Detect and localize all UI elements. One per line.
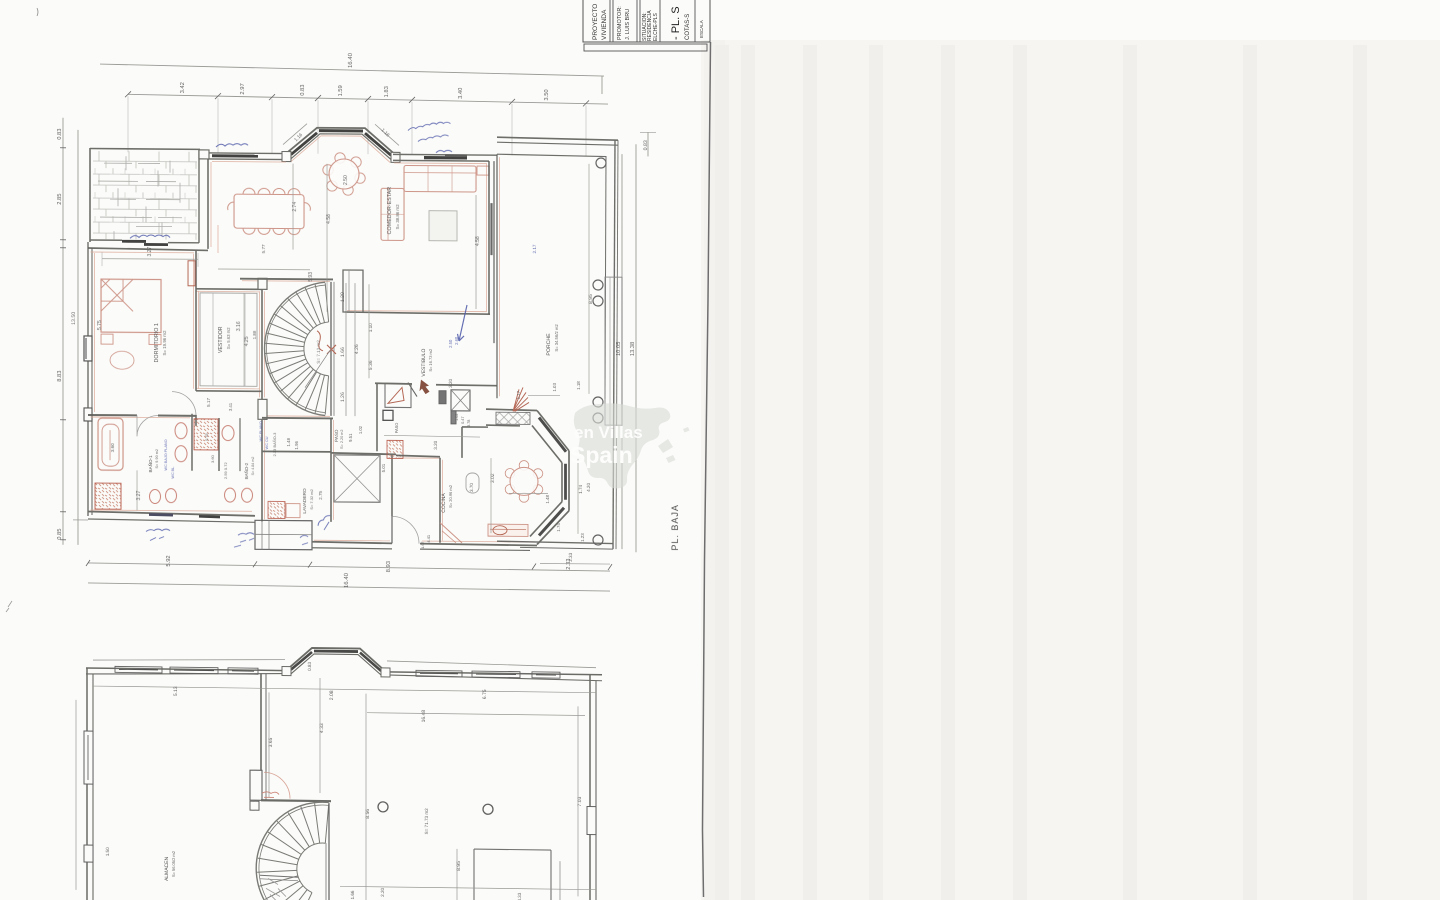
svg-text:16.40: 16.40 xyxy=(348,52,354,68)
svg-text:3.40: 3.40 xyxy=(458,88,464,99)
svg-text:S= 34.56/2 m2: S= 34.56/2 m2 xyxy=(554,324,559,352)
svg-text:1.03: 1.03 xyxy=(552,383,557,392)
svg-text:3.42: 3.42 xyxy=(180,82,186,93)
svg-text:COCINA: COCINA xyxy=(441,493,447,513)
svg-text:S= 2.20 m2: S= 2.20 m2 xyxy=(340,429,344,449)
svg-text:1.96: 1.96 xyxy=(294,440,299,449)
svg-text:5.17: 5.17 xyxy=(206,398,211,407)
svg-text:en Villas: en Villas xyxy=(574,423,643,442)
svg-text:1.20: 1.20 xyxy=(340,292,346,302)
svg-text:5.13: 5.13 xyxy=(173,686,179,696)
svg-text:2.85: 2.85 xyxy=(57,193,63,204)
svg-text:2.08: 2.08 xyxy=(329,690,335,700)
svg-text:WC BL: WC BL xyxy=(171,467,175,479)
svg-text:S= 19.96 m2: S= 19.96 m2 xyxy=(162,330,167,356)
svg-text:3.50: 3.50 xyxy=(544,89,550,100)
svg-text:2.33: 2.33 xyxy=(568,552,573,561)
svg-text:1.66: 1.66 xyxy=(350,890,355,899)
svg-text:3.41: 3.41 xyxy=(228,402,233,411)
svg-text:DORMITORIO 1: DORMITORIO 1 xyxy=(154,323,160,362)
svg-text:5.01: 5.01 xyxy=(381,463,386,472)
svg-text:BAÑO-1: BAÑO-1 xyxy=(147,455,153,473)
svg-text:S= 71.73 m2: S= 71.73 m2 xyxy=(424,808,429,835)
svg-text:5.93: 5.93 xyxy=(308,272,314,282)
svg-text:COMEDOR-ESTAR: COMEDOR-ESTAR xyxy=(387,187,393,235)
svg-text:4.33: 4.33 xyxy=(517,892,522,900)
svg-text:- PL. S: - PL. S xyxy=(670,6,682,40)
svg-text:13.38: 13.38 xyxy=(630,342,636,357)
svg-text:1.02: 1.02 xyxy=(455,413,459,420)
svg-text:0.47: 0.47 xyxy=(461,417,465,424)
svg-text:3.27: 3.27 xyxy=(147,246,153,256)
svg-text:Spain: Spain xyxy=(570,442,633,468)
svg-text:1.59: 1.59 xyxy=(338,85,344,96)
svg-text:1.50: 1.50 xyxy=(105,847,110,856)
svg-text:0.83: 0.83 xyxy=(57,128,63,139)
svg-text:16.40: 16.40 xyxy=(344,572,350,588)
svg-text:S= 7.32 m2: S= 7.32 m2 xyxy=(309,488,314,509)
svg-text:4.41: 4.41 xyxy=(426,534,431,543)
svg-text:S= 38.86 m2: S= 38.86 m2 xyxy=(395,204,400,230)
svg-text:VESTIDOR: VESTIDOR xyxy=(218,326,224,353)
svg-text:9.51: 9.51 xyxy=(348,433,353,442)
svg-text:S= 9.90 m2: S= 9.90 m2 xyxy=(155,449,159,469)
svg-text:2.97: 2.97 xyxy=(240,83,246,94)
svg-text:2.20: 2.20 xyxy=(380,887,385,896)
svg-text:2.75: 2.75 xyxy=(318,490,323,499)
svg-text:S= 56.05/2 m2: S= 56.05/2 m2 xyxy=(171,850,176,877)
svg-text:8.83: 8.83 xyxy=(57,370,63,381)
svg-text:WC CU: WC CU xyxy=(265,436,269,449)
svg-text:1.26: 1.26 xyxy=(340,392,346,402)
svg-text:3.20: 3.20 xyxy=(448,378,453,387)
svg-text:PORCHE: PORCHE xyxy=(546,333,552,356)
svg-text:1.88: 1.88 xyxy=(252,330,257,339)
svg-text:ELCHE-PLS: ELCHE-PLS xyxy=(653,13,659,41)
svg-text:BAÑO-2: BAÑO-2 xyxy=(244,462,249,479)
svg-text:ALMACEN: ALMACEN xyxy=(164,856,170,881)
svg-text:PASO: PASO xyxy=(334,429,339,442)
svg-text:0.83: 0.83 xyxy=(643,140,649,150)
svg-text:1.48: 1.48 xyxy=(286,437,291,446)
svg-text:LAVADERO: LAVADERO xyxy=(302,488,308,514)
svg-text:1.18: 1.18 xyxy=(576,381,581,390)
svg-text:VIVIENDA: VIVIENDA xyxy=(601,9,608,40)
svg-text:4.58: 4.58 xyxy=(475,236,481,246)
svg-text:VESTIBULO: VESTIBULO xyxy=(421,348,427,376)
svg-text:0.83: 0.83 xyxy=(307,661,312,670)
svg-text:J. LUIS BRU: J. LUIS BRU xyxy=(625,9,631,40)
svg-text:0.83: 0.83 xyxy=(300,84,306,95)
svg-text:5.77: 5.77 xyxy=(261,244,266,253)
svg-text:PROMOTOR:: PROMOTOR: xyxy=(617,6,623,40)
svg-text:COTAS-S: COTAS-S xyxy=(685,14,691,40)
svg-text:3.60: 3.60 xyxy=(110,443,115,452)
svg-text:1.83: 1.83 xyxy=(384,86,390,97)
svg-text:2.59 0.72: 2.59 0.72 xyxy=(223,462,228,479)
svg-text:S= 20.96 m2: S= 20.96 m2 xyxy=(448,484,453,508)
svg-text:3.78: 3.78 xyxy=(467,420,471,427)
svg-text:1.74: 1.74 xyxy=(556,523,561,532)
svg-text:6.75: 6.75 xyxy=(482,689,488,699)
svg-text:3.60: 3.60 xyxy=(210,454,215,463)
svg-text:0.75: 0.75 xyxy=(204,432,209,441)
svg-text:2.50: 2.50 xyxy=(448,339,453,348)
svg-text:WC PLANO: WC PLANO xyxy=(259,421,263,441)
svg-text:1.23: 1.23 xyxy=(580,533,585,542)
svg-text:5.92: 5.92 xyxy=(166,555,172,566)
svg-text:PROYECTO: PROYECTO xyxy=(592,4,599,40)
svg-text:4.20: 4.20 xyxy=(586,483,591,492)
svg-text:S= 4.84 m2: S= 4.84 m2 xyxy=(251,457,255,476)
svg-text:16.48: 16.48 xyxy=(421,710,427,723)
svg-text:4.26: 4.26 xyxy=(354,344,360,354)
svg-text:13.50: 13.50 xyxy=(71,312,77,325)
svg-text:2.33 BAÑO-3: 2.33 BAÑO-3 xyxy=(272,432,277,457)
svg-text:3.20: 3.20 xyxy=(433,440,438,449)
svg-text:0.85: 0.85 xyxy=(57,528,63,539)
svg-text:PASO: PASO xyxy=(394,423,399,434)
svg-text:S= 5.63 m2: S= 5.63 m2 xyxy=(226,327,231,349)
svg-text:1.67: 1.67 xyxy=(421,542,425,549)
svg-text:1.66: 1.66 xyxy=(340,347,346,357)
svg-text:ESCALA: ESCALA xyxy=(699,20,704,38)
svg-text:3.70: 3.70 xyxy=(469,483,474,492)
svg-text:8.93: 8.93 xyxy=(386,561,392,572)
svg-text:5.75: 5.75 xyxy=(97,320,103,330)
svg-text:1.02: 1.02 xyxy=(358,425,363,434)
svg-text:1.74: 1.74 xyxy=(578,484,583,493)
svg-text:3.16: 3.16 xyxy=(236,321,242,331)
svg-text:S= 16.73 m2: S= 16.73 m2 xyxy=(428,348,433,372)
svg-text:1.48: 1.48 xyxy=(545,494,550,503)
svg-text:S= 7.13 m2: S= 7.13 m2 xyxy=(316,340,321,364)
svg-text:2.60: 2.60 xyxy=(454,336,459,345)
svg-text:PL. BAJA: PL. BAJA xyxy=(670,504,680,551)
svg-text:4.25: 4.25 xyxy=(244,336,250,346)
svg-text:WC BAJO PLANO: WC BAJO PLANO xyxy=(164,439,168,470)
svg-text:1.17: 1.17 xyxy=(516,390,521,399)
svg-text:2.17: 2.17 xyxy=(532,244,537,253)
svg-text:2.50: 2.50 xyxy=(343,175,349,185)
